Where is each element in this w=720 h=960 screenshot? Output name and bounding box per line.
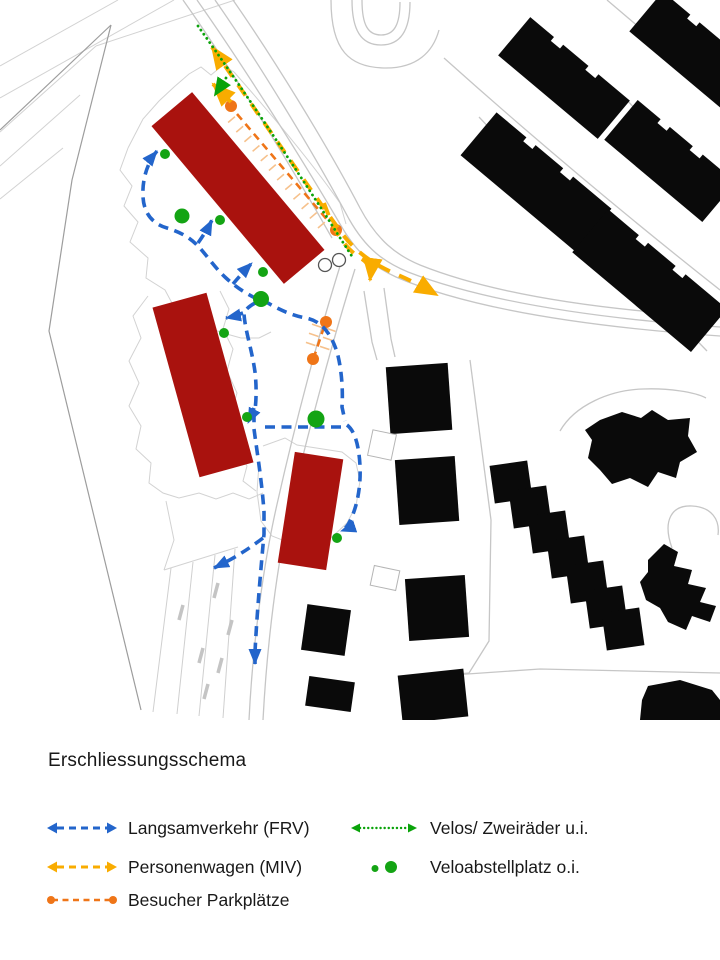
velo-parking-dot-small [160,149,170,159]
outbuildings [368,430,400,591]
site-plan-page: { "legend": { "title": "Erschliessungssc… [0,0,720,960]
velo-double-arrow-icon [348,820,420,836]
legend-item-miv: Personenwagen (MIV) [46,857,302,877]
parking-lot [153,549,235,718]
velo-parking-dots-icon [348,859,420,875]
velo-parking-dot-small [332,533,342,543]
existing-building [640,544,716,630]
legend-label: Langsamverkehr (FRV) [128,818,310,839]
frv-west-path [244,303,256,425]
legend-title: Erschliessungsschema [48,750,246,772]
visitor-parking-line-icon [46,892,118,908]
existing-building-rowhouses [490,461,645,651]
velo-entry-arrow [215,78,226,95]
existing-building [386,363,453,434]
velo-parking-dot-large [253,291,269,307]
velo-parking-dot-large [308,411,325,428]
visitor-parking-dot [320,316,332,328]
legend-label: Velos/ Zweiräder u.i. [430,818,589,839]
existing-building [398,669,469,720]
velo-parking-dot-small [219,328,229,338]
legend-label: Veloabstellplatz o.i. [430,857,580,878]
existing-building [405,575,469,641]
velo-parking-dot-small [242,412,252,422]
frv-parking-arrow [214,538,263,568]
legend-label: Besucher Parkplätze [128,890,289,911]
legend-label: Personenwagen (MIV) [128,857,302,878]
visitor-parking-dot [307,353,319,365]
frv-south-path [254,429,264,664]
existing-buildings [301,0,720,720]
existing-building [395,456,459,525]
velo-parking-dot-small [258,267,268,277]
velo-parking-dot-large [175,209,190,224]
frv-branch-arrow [233,263,252,284]
entrance-circles [319,254,346,272]
miv-exit-arrow [213,84,231,102]
legend-item-velo: Velos/ Zweiräder u.i. [348,818,589,838]
existing-building [640,680,720,720]
velo-parking-dot-small [215,215,225,225]
existing-building [604,97,720,222]
legend-item-velo-parking: Veloabstellplatz o.i. [348,857,580,877]
frv-branch-arrow [198,220,212,243]
legend: Erschliessungsschema Langsamverkehr (FRV… [0,720,720,960]
new-building [278,452,344,570]
frv-building3-loop [341,425,360,531]
new-building [153,293,254,478]
legend-item-frv: Langsamverkehr (FRV) [46,818,310,838]
existing-building [498,14,632,139]
site-plan-map [0,0,720,720]
legend-item-visitor-parking: Besucher Parkplätze [46,890,289,910]
existing-building [585,410,697,487]
existing-building [305,676,355,712]
existing-building [629,0,720,108]
miv-double-arrow-icon [46,859,118,875]
existing-building [301,604,351,656]
frv-east-path [263,300,345,421]
frv-double-arrow-icon [46,820,118,836]
frv-branch-arrow [226,313,243,318]
